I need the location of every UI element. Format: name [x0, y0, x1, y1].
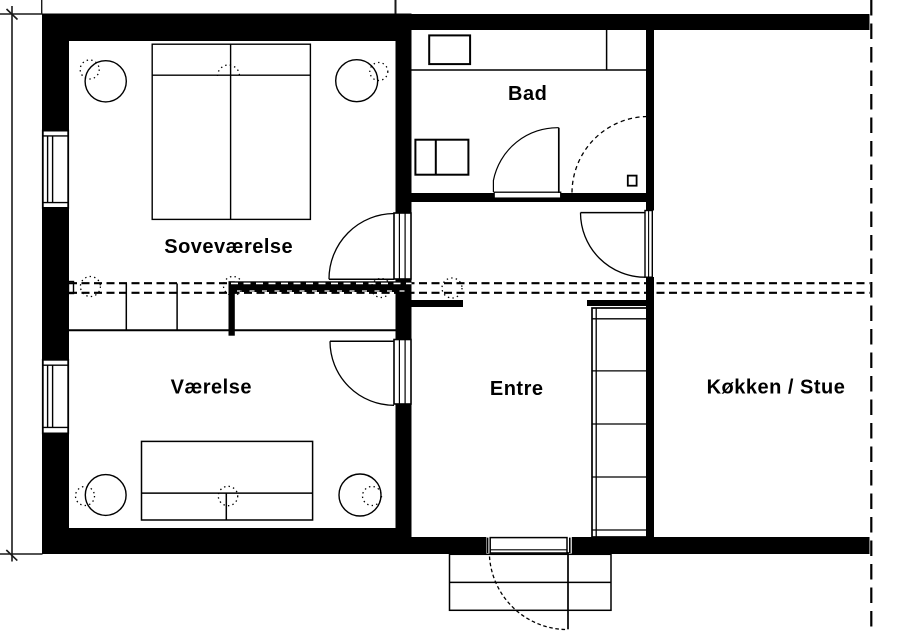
- svg-text:Entre: Entre: [490, 378, 544, 400]
- svg-text:Bad: Bad: [508, 83, 547, 105]
- svg-text:Køkken / Stue: Køkken / Stue: [707, 376, 846, 398]
- svg-text:Soveværelse: Soveværelse: [164, 236, 293, 258]
- svg-text:Værelse: Værelse: [171, 377, 252, 399]
